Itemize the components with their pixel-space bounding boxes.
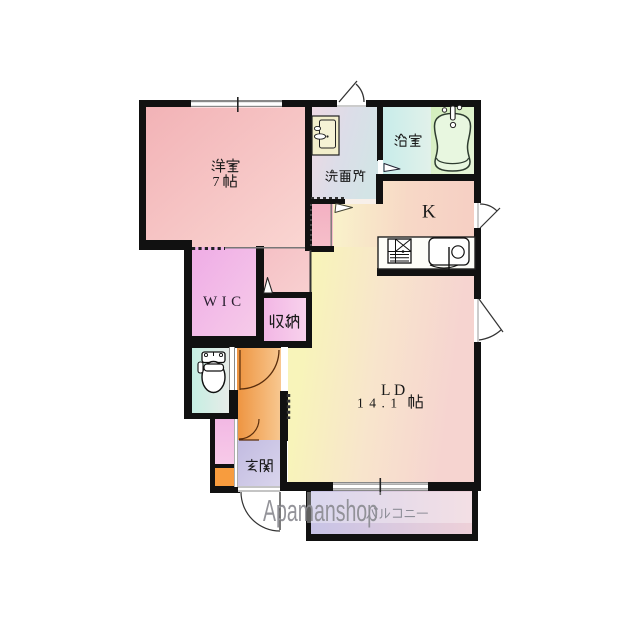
svg-text:7: 7: [213, 175, 220, 190]
svg-text:WIC: WIC: [203, 294, 246, 310]
svg-text:K: K: [422, 202, 436, 223]
svg-text:Apamanshop: Apamanshop: [263, 495, 378, 529]
svg-text:14.1: 14.1: [357, 396, 403, 411]
